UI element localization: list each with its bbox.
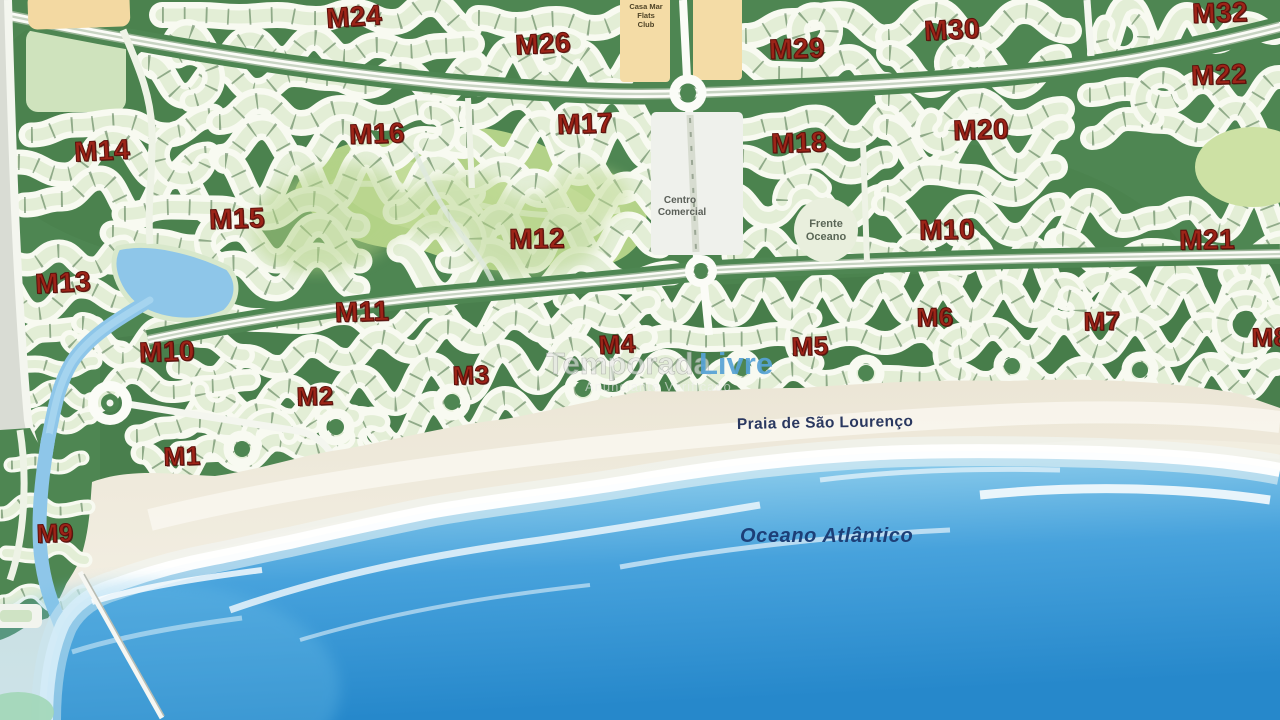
svg-text:Temporada: Temporada <box>546 346 712 381</box>
svg-text:M16: M16 <box>349 117 406 150</box>
svg-text:Flats: Flats <box>637 11 655 20</box>
svg-text:M8: M8 <box>1251 322 1280 353</box>
svg-text:M9: M9 <box>36 517 74 548</box>
svg-text:Praia de São Lourenço: Praia de São Lourenço <box>737 413 914 433</box>
svg-text:Anunciante Verificado: Anunciante Verificado <box>585 379 732 394</box>
svg-text:Frente: Frente <box>809 218 843 230</box>
svg-text:M24: M24 <box>325 0 383 34</box>
svg-text:M12: M12 <box>509 223 566 255</box>
svg-text:M20: M20 <box>953 113 1010 146</box>
svg-text:M6: M6 <box>916 302 954 333</box>
svg-text:M10: M10 <box>139 335 196 368</box>
svg-text:M32: M32 <box>1192 0 1249 29</box>
svg-text:M3: M3 <box>452 359 490 390</box>
svg-text:M29: M29 <box>769 32 826 65</box>
svg-text:M2: M2 <box>296 380 334 411</box>
svg-text:M17: M17 <box>557 107 614 140</box>
svg-text:M22: M22 <box>1191 58 1248 91</box>
svg-text:M10: M10 <box>919 214 976 246</box>
svg-text:Oceano Atlântico: Oceano Atlântico <box>740 525 913 547</box>
svg-text:M26: M26 <box>514 27 572 61</box>
svg-text:Centro: Centro <box>664 195 696 206</box>
svg-text:Club: Club <box>638 20 655 29</box>
svg-text:M11: M11 <box>334 295 389 328</box>
svg-text:M7: M7 <box>1083 306 1121 337</box>
svg-text:M15: M15 <box>209 202 266 235</box>
svg-text:M5: M5 <box>791 330 829 361</box>
svg-text:Oceano: Oceano <box>806 231 847 243</box>
svg-text:M1: M1 <box>163 440 201 471</box>
svg-text:M21: M21 <box>1179 224 1236 256</box>
svg-text:Comercial: Comercial <box>658 207 707 218</box>
svg-text:Casa Mar: Casa Mar <box>629 2 662 11</box>
svg-text:M30: M30 <box>923 13 981 47</box>
svg-text:Livre: Livre <box>699 346 773 381</box>
svg-text:M13: M13 <box>34 266 92 300</box>
svg-text:M18: M18 <box>771 126 828 159</box>
svg-text:M14: M14 <box>73 134 131 168</box>
